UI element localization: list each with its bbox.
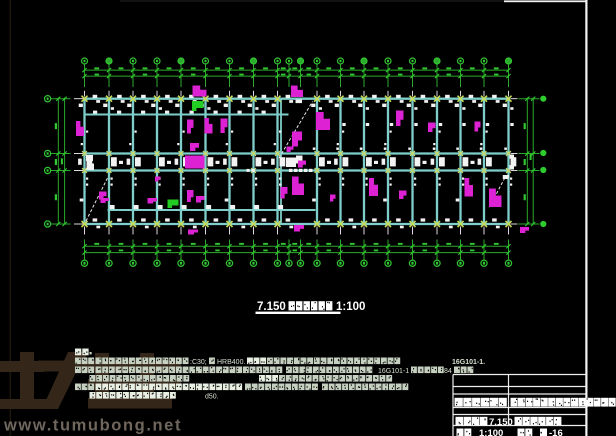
svg-text::C30;: :C30; <box>190 359 207 366</box>
svg-text:www.tumubong.net: www.tumubong.net <box>3 417 182 435</box>
svg-text:1:100: 1:100 <box>336 301 365 313</box>
svg-text:7.150: 7.150 <box>489 417 513 428</box>
svg-text:16G101-1: 16G101-1 <box>378 368 409 375</box>
svg-text:84: 84 <box>444 368 452 375</box>
svg-text:d50.: d50. <box>205 394 219 401</box>
svg-text:HRB400.: HRB400. <box>217 359 245 366</box>
svg-text:1:100: 1:100 <box>479 428 503 436</box>
svg-text:16G101-1.: 16G101-1. <box>452 359 485 366</box>
svg-text:-16: -16 <box>549 428 563 436</box>
svg-text:7.150: 7.150 <box>257 301 286 313</box>
